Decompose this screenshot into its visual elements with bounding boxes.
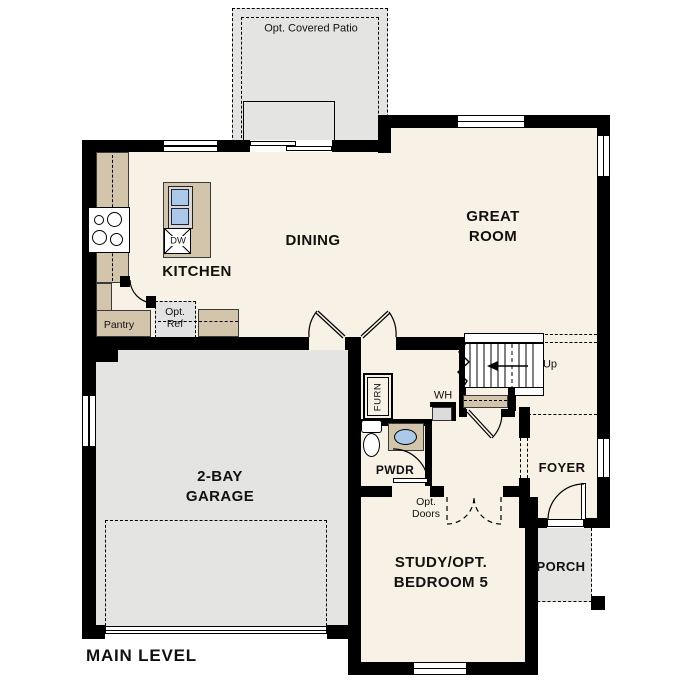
garage-door-swing-dashed	[105, 520, 327, 626]
garage-door	[105, 626, 327, 634]
dishwasher-label: DW	[170, 237, 186, 248]
wall	[396, 337, 465, 350]
dashed-line	[545, 342, 597, 343]
window	[413, 662, 467, 675]
kitchen-counter-right	[198, 309, 239, 337]
front-door-threshold	[547, 519, 584, 527]
range-cooktop	[88, 207, 130, 253]
wall	[218, 140, 250, 152]
wall	[591, 596, 605, 610]
wall	[82, 447, 96, 639]
porch-label: PORCH	[537, 558, 586, 576]
toilet-bowl	[363, 433, 380, 457]
wall	[459, 409, 467, 417]
wall	[467, 662, 538, 675]
stairs	[464, 343, 544, 388]
powder-door-leaf	[393, 478, 428, 483]
closet-shelf	[463, 395, 508, 408]
wall	[378, 115, 457, 128]
opt-doors-label: Opt.Doors	[412, 496, 440, 520]
dashed-line	[545, 334, 597, 335]
wall	[425, 419, 432, 486]
cased-opening-dashed	[520, 438, 521, 478]
toilet-tank	[361, 420, 382, 433]
opt-ref-label: Opt.Ref	[165, 306, 185, 330]
powder-label: PWDR	[376, 462, 414, 478]
wall	[519, 478, 530, 522]
window	[597, 135, 610, 177]
window	[163, 140, 218, 152]
great-room-label: GREATROOM	[466, 207, 519, 248]
patio-label: Opt. Covered Patio	[264, 23, 358, 36]
window	[82, 395, 96, 447]
wall	[82, 337, 309, 350]
wall	[82, 625, 105, 639]
wall	[348, 662, 413, 675]
wall	[519, 518, 547, 528]
cased-opening-dashed	[527, 438, 528, 478]
wall	[82, 140, 163, 152]
stair-landing-top	[464, 333, 544, 343]
wall	[327, 625, 348, 639]
window	[457, 115, 525, 128]
wall	[597, 115, 610, 135]
kitchen-label: KITCHEN	[162, 262, 231, 282]
stair-landing-bottom	[514, 387, 544, 396]
dashed-line	[528, 414, 597, 415]
dashed-line	[464, 400, 507, 401]
water-heater-label: WH	[434, 390, 452, 403]
wall	[348, 337, 361, 675]
water-heater	[432, 407, 452, 421]
pantry-label: Pantry	[104, 319, 134, 331]
foyer-label: FOYER	[539, 459, 586, 477]
wall	[584, 518, 610, 528]
study-label: STUDY/OPT.BEDROOM 5	[394, 553, 488, 594]
furnace: FURN	[363, 373, 393, 420]
wall	[82, 140, 96, 395]
wall	[146, 296, 156, 308]
wall	[597, 177, 610, 438]
floor-plan: DW FURN	[0, 0, 687, 687]
plan-title: MAIN LEVEL	[86, 646, 197, 666]
wall	[519, 407, 530, 438]
wall	[96, 350, 118, 362]
powder-sink	[394, 429, 417, 445]
dishwasher: DW	[164, 228, 191, 254]
garage-label: 2-BAYGARAGE	[186, 467, 254, 508]
kitchen-sink	[168, 186, 193, 229]
wall	[120, 276, 130, 287]
wall	[348, 486, 392, 497]
window	[597, 438, 610, 478]
furnace-label: FURN	[373, 382, 384, 410]
dining-label: DINING	[286, 231, 341, 251]
stairs-up-label: Up	[543, 359, 557, 372]
front-door-leaf	[581, 483, 586, 520]
sliding-door-panel	[286, 146, 332, 151]
